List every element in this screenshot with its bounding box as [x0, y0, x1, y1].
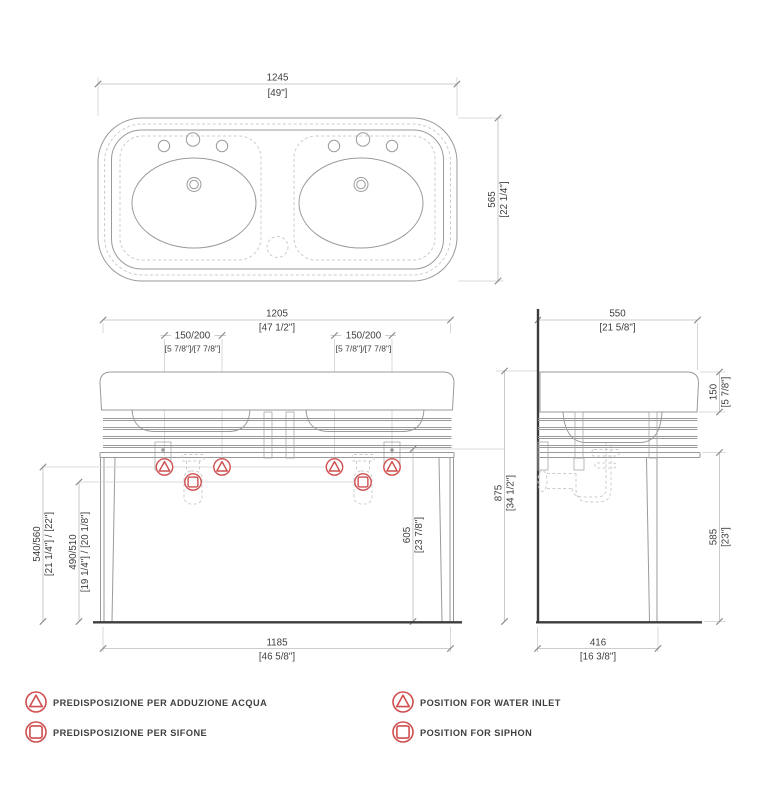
water-inlet-marker: [156, 459, 172, 475]
front-siphon-height-mm: 490/510: [68, 534, 79, 570]
sink-body-side: [540, 372, 699, 412]
top-width-mm: 1245: [267, 73, 289, 84]
front-total-height-in: [34 1/2"]: [506, 475, 517, 511]
front-total-height-mm: 875: [494, 484, 505, 501]
siphon-marker: [185, 474, 201, 490]
legend-item-water-inlet-it: PREDISPOSIZIONE PER ADDUZIONE ACQUA: [26, 692, 267, 712]
side-rim-height-in: [5 7/8"]: [721, 376, 732, 407]
legend-label: POSITION FOR WATER INLET: [420, 698, 561, 708]
side-leg-height-in: [23"]: [721, 527, 732, 547]
water-inlet-icon: [26, 692, 46, 712]
legend-item-water-inlet-en: POSITION FOR WATER INLET: [393, 692, 561, 712]
legend-item-siphon-en: POSITION FOR SIPHON: [393, 722, 532, 742]
front-width-mm: 1205: [266, 309, 288, 320]
sink-body-front: [100, 372, 454, 410]
water-inlet-icon: [393, 692, 413, 712]
towel-rails-side: [538, 419, 700, 458]
side-rim-height-mm: 150: [709, 383, 720, 400]
legend-item-siphon-it: PREDISPOSIZIONE PER SIFONE: [26, 722, 207, 742]
side-base-depth-in: [16 3/8"]: [580, 652, 616, 663]
side-depth-mm: 550: [609, 309, 626, 320]
siphon-icon: [26, 722, 46, 742]
top-width-in: [49"]: [268, 88, 288, 99]
top-depth-mm: 565: [487, 191, 498, 208]
top-depth-in: [22 1/4"]: [499, 181, 510, 217]
front-siphon-height-in: [19 1/4"] / [20 1/8"]: [80, 511, 91, 592]
water-inlet-marker: [214, 459, 230, 475]
front-width-in: [47 1/2"]: [259, 323, 295, 334]
front-base-width-mm: 1185: [266, 638, 288, 649]
legend-label: POSITION FOR SIPHON: [420, 728, 532, 738]
siphon-marker: [355, 474, 371, 490]
technical-drawing-page: 1245 [49"] 565 [22 1/4"]: [0, 0, 774, 798]
front-frame-height-in: [23 7/8"]: [414, 517, 425, 553]
side-base-depth-mm: 416: [590, 638, 607, 649]
front-inlet-height-in: [21 1/4"] / [22"]: [44, 512, 55, 576]
top-view: 1245 [49"] 565 [22 1/4"]: [95, 73, 510, 285]
basin-outer-rim: [98, 118, 457, 281]
front-tap-left-in: [5 7/8"]/[7 7/8"]: [165, 344, 221, 354]
water-inlet-marker: [326, 459, 342, 475]
front-tap-right-mm: 150/200: [346, 331, 382, 342]
legend-label: PREDISPOSIZIONE PER ADDUZIONE ACQUA: [53, 698, 267, 708]
side-view: 550 [21 5/8"] 150: [534, 309, 731, 663]
towel-rails-front: [100, 419, 454, 458]
side-leg-height-mm: 585: [709, 528, 720, 545]
siphon-icon: [393, 722, 413, 742]
front-tap-right-in: [5 7/8"]/[7 7/8"]: [336, 344, 392, 354]
legs-front: [101, 458, 454, 622]
legend: PREDISPOSIZIONE PER ADDUZIONE ACQUA PRED…: [26, 692, 561, 742]
water-inlet-marker: [384, 459, 400, 475]
hidden-siphon-side: [538, 443, 619, 502]
side-depth-in: [21 5/8"]: [599, 323, 635, 334]
front-frame-height-mm: 605: [402, 526, 413, 543]
front-tap-left-mm: 150/200: [175, 331, 211, 342]
front-base-width-in: [46 5/8"]: [259, 652, 295, 663]
leg-side: [647, 458, 658, 622]
legend-label: PREDISPOSIZIONE PER SIFONE: [53, 728, 207, 738]
front-view: 1205 [47 1/2"] 150/200 [5 7/8"]/[7 7/8"]…: [32, 309, 537, 663]
front-inlet-height-mm: 540/560: [32, 526, 43, 562]
technical-drawing: 1245 [49"] 565 [22 1/4"]: [0, 0, 774, 798]
